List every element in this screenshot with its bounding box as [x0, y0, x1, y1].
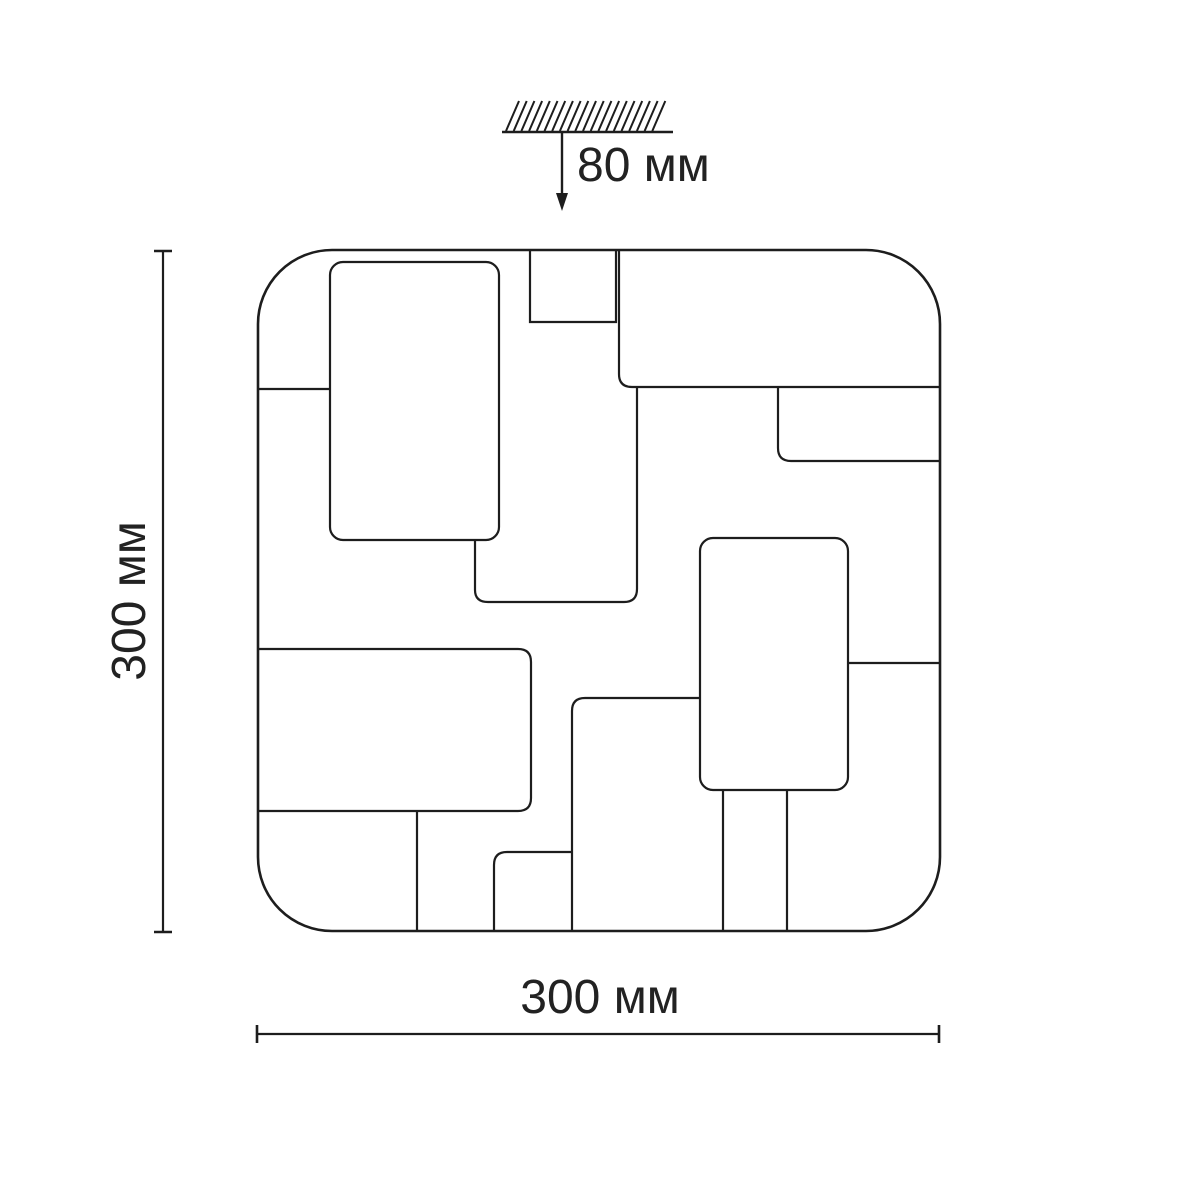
dimension-drawing-canvas: 80 мм	[0, 0, 1200, 1200]
height-dimension-label: 300 мм	[103, 521, 156, 680]
panel-bottom-center	[572, 698, 700, 930]
panel-center-right	[700, 538, 848, 790]
panel-bottom-step	[494, 852, 571, 930]
height-dimension: 300 мм	[103, 251, 172, 932]
panel-top-center-notch	[530, 251, 616, 322]
fixture-front-view	[258, 250, 940, 931]
down-arrow-icon	[556, 193, 568, 211]
panel-top-right	[619, 251, 939, 387]
panel-right-upper	[778, 387, 939, 461]
ceiling-hatch-icon	[506, 101, 665, 131]
mount-height-dimension: 80 мм	[556, 132, 710, 211]
ceiling-light-dimension-drawing: 80 мм	[0, 0, 1200, 1200]
fixture-outline	[258, 250, 940, 931]
panel-top-left	[330, 262, 499, 540]
panel-bottom-left	[259, 649, 531, 811]
mount-height-label: 80 мм	[577, 139, 710, 192]
width-dimension-label: 300 мм	[520, 971, 679, 1024]
ceiling-mount-symbol	[502, 101, 673, 132]
width-dimension: 300 мм	[257, 971, 939, 1043]
